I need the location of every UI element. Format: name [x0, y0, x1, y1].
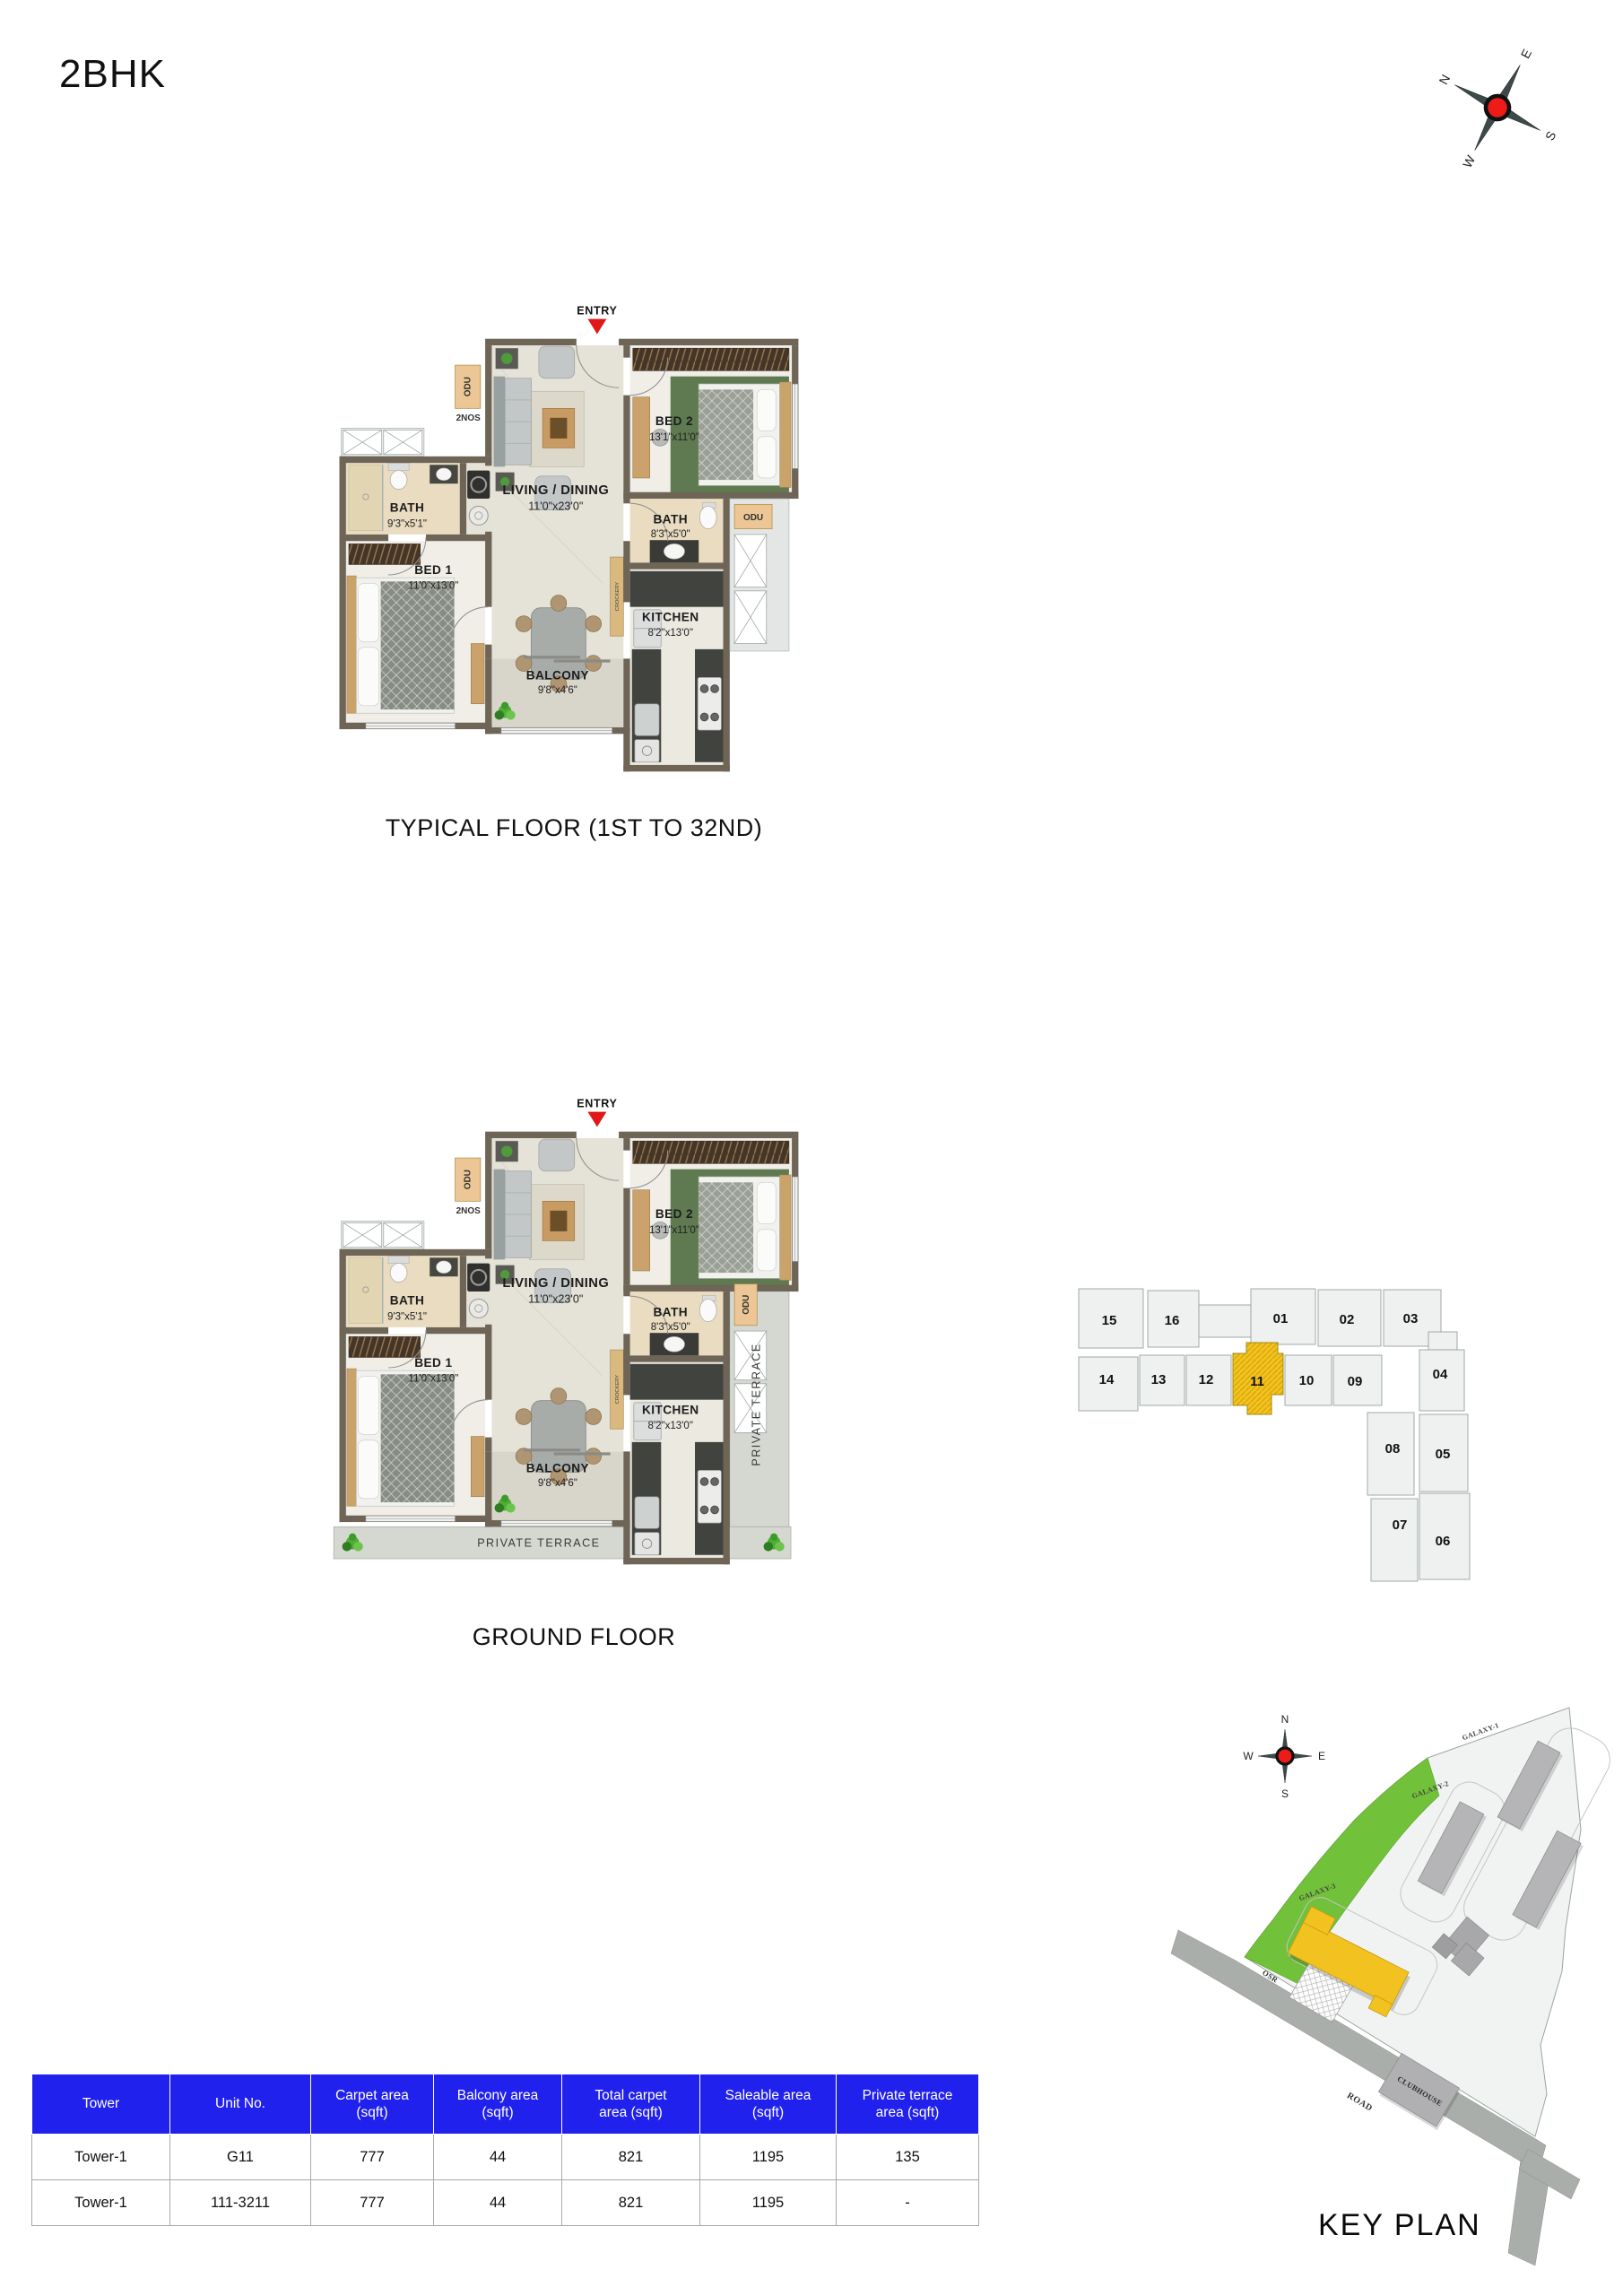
key-plan-caption: KEY PLAN [1318, 2208, 1481, 2242]
cell-balcony: 44 [434, 2180, 562, 2226]
unit-label-10: 10 [1299, 1373, 1315, 1388]
unit-block-core [1199, 1305, 1251, 1337]
site-key-plan: GALAXY-1 GALAXY-2 GALAXY-3 OSR ROAD CLUB… [1166, 1695, 1619, 2274]
unit-key-plan: 15 16 01 02 03 14 13 12 11 10 09 04 08 0… [1063, 1278, 1623, 1619]
compass-n-label: N [1281, 1713, 1289, 1726]
two-nos-label: 2NOS [456, 1206, 481, 1216]
table-header-row: Tower Unit No. Carpet area (sqft) Balcon… [32, 2074, 979, 2135]
bath1-label: BATH [390, 501, 425, 515]
typical-floor-caption: TYPICAL FLOOR (1ST TO 32ND) [345, 814, 803, 842]
ground-floor-plan: ENTRY BED 2 13'1"x11'0" BATH 8'3"x5'0" L… [330, 1084, 810, 1574]
header-carpet-area: Carpet area (sqft) [311, 2074, 434, 2135]
header-saleable-area: Saleable area (sqft) [700, 2074, 837, 2135]
unit-label-04: 04 [1433, 1367, 1448, 1382]
unit-label-09: 09 [1348, 1374, 1363, 1389]
kitchen-dims: 8'2"x13'0" [648, 628, 693, 639]
cell-saleable: 1195 [700, 2180, 837, 2226]
compass-s-label: S [1281, 1787, 1289, 1800]
bed1-dims: 11'0"x13'0" [408, 1374, 458, 1385]
bed2-dims: 13'1"x11'0" [649, 1225, 699, 1236]
odu-left-label: ODU [463, 1170, 473, 1189]
cell-saleable: 1195 [700, 2135, 837, 2180]
entry-label: ENTRY [577, 304, 617, 317]
bed1-label: BED 1 [414, 563, 452, 577]
compass-e-label: E [1318, 1750, 1325, 1762]
compass-w-label: W [1243, 1750, 1254, 1762]
cell-balcony: 44 [434, 2135, 562, 2180]
crockery-label: CROCKERY [615, 1375, 621, 1405]
balcony-label: BALCONY [526, 668, 589, 682]
balcony-dims: 9'8"x4'6" [538, 1478, 577, 1489]
compass-s-label: S [1542, 129, 1559, 143]
compass-rose-site: N E S W [1243, 1713, 1325, 1800]
kitchen-label: KITCHEN [642, 610, 699, 623]
header-private-terrace-area: Private terrace area (sqft) [837, 2074, 979, 2135]
cell-total-carpet: 821 [562, 2135, 700, 2180]
unit-label-03: 03 [1403, 1311, 1419, 1326]
balcony-dims: 9'8"x4'6" [538, 685, 577, 696]
compass-center-icon [1481, 91, 1513, 123]
cell-private-terrace: 135 [837, 2135, 979, 2180]
odu-right-label: ODU [743, 513, 763, 523]
crockery-label: CROCKERY [615, 582, 621, 612]
cell-carpet: 777 [311, 2180, 434, 2226]
bath2-label: BATH [653, 512, 688, 526]
table-row: Tower-1 111-3211 777 44 821 1195 - [32, 2180, 979, 2226]
compass-n-label: N [1436, 72, 1453, 86]
floor-plan-drawing [339, 1132, 798, 1565]
living-label: LIVING / DINING [502, 1276, 609, 1291]
living-dims: 11'0"x23'0" [528, 500, 583, 513]
private-terrace-right-label: PRIVATE TERRACE [750, 1343, 762, 1465]
unit-label-08: 08 [1385, 1441, 1401, 1457]
compass-w-label: W [1460, 152, 1479, 170]
cell-unit-no: 111-3211 [170, 2180, 311, 2226]
unit-label-15: 15 [1102, 1313, 1117, 1328]
table-row: Tower-1 G11 777 44 821 1195 135 [32, 2135, 979, 2180]
balcony-label: BALCONY [526, 1461, 589, 1474]
bed2-label: BED 2 [655, 414, 693, 428]
bath1-dims: 9'3"x5'1" [387, 1312, 427, 1323]
two-nos-label: 2NOS [456, 413, 481, 423]
bed2-label: BED 2 [655, 1207, 693, 1221]
road-label: ROAD [1345, 2091, 1374, 2113]
bath2-label: BATH [653, 1305, 688, 1318]
page-title: 2BHK [59, 52, 166, 97]
bed1-dims: 11'0"x13'0" [408, 581, 458, 592]
compass-rose-tilted: N E S W [1417, 36, 1587, 188]
private-terrace-bottom-label: PRIVATE TERRACE [477, 1536, 600, 1549]
header-unit-no: Unit No. [170, 2074, 311, 2135]
bath1-label: BATH [390, 1294, 425, 1308]
cell-private-terrace: - [837, 2180, 979, 2226]
brochure-page: { "page": { "title": "2BHK" }, "captions… [0, 0, 1623, 2296]
unit-label-13: 13 [1151, 1372, 1167, 1387]
odu-left-label: ODU [463, 377, 473, 396]
bath2-dims: 8'3"x5'0" [651, 1322, 690, 1333]
living-label: LIVING / DINING [502, 483, 609, 498]
cell-unit-no: G11 [170, 2135, 311, 2180]
compass-e-label: E [1518, 47, 1535, 61]
cell-tower: Tower-1 [32, 2135, 170, 2180]
header-balcony-area: Balcony area (sqft) [434, 2074, 562, 2135]
typical-floor-plan: ENTRY BED 2 13'1"x11'0" BATH 8'3"x5'0" L… [330, 291, 810, 781]
area-table: Tower Unit No. Carpet area (sqft) Balcon… [31, 2074, 979, 2226]
entry-arrow-icon [587, 1112, 606, 1127]
unit-block-07 [1371, 1499, 1418, 1581]
entry-label: ENTRY [577, 1097, 617, 1109]
odu-right-label: ODU [742, 1295, 751, 1315]
unit-label-11: 11 [1250, 1374, 1264, 1389]
header-total-carpet-area: Total carpet area (sqft) [562, 2074, 700, 2135]
header-tower: Tower [32, 2074, 170, 2135]
cell-total-carpet: 821 [562, 2180, 700, 2226]
bed2-dims: 13'1"x11'0" [649, 432, 699, 443]
unit-label-12: 12 [1199, 1372, 1214, 1387]
living-dims: 11'0"x23'0" [528, 1293, 583, 1306]
cell-tower: Tower-1 [32, 2180, 170, 2226]
unit-label-01: 01 [1273, 1311, 1289, 1326]
unit-label-06: 06 [1436, 1534, 1451, 1549]
cell-carpet: 777 [311, 2135, 434, 2180]
unit-label-05: 05 [1436, 1447, 1451, 1462]
compass-center-icon [1277, 1748, 1293, 1764]
unit-label-07: 07 [1393, 1518, 1408, 1533]
bath2-dims: 8'3"x5'0" [651, 529, 690, 540]
unit-label-02: 02 [1340, 1312, 1355, 1327]
ground-floor-caption: GROUND FLOOR [345, 1623, 803, 1651]
kitchen-label: KITCHEN [642, 1403, 699, 1416]
unit-label-16: 16 [1165, 1313, 1180, 1328]
bath1-dims: 9'3"x5'1" [387, 519, 427, 530]
bed1-label: BED 1 [414, 1356, 452, 1370]
unit-block-04-tab [1428, 1332, 1457, 1350]
kitchen-dims: 8'2"x13'0" [648, 1421, 693, 1431]
entry-arrow-icon [587, 319, 606, 335]
unit-label-14: 14 [1099, 1372, 1115, 1387]
